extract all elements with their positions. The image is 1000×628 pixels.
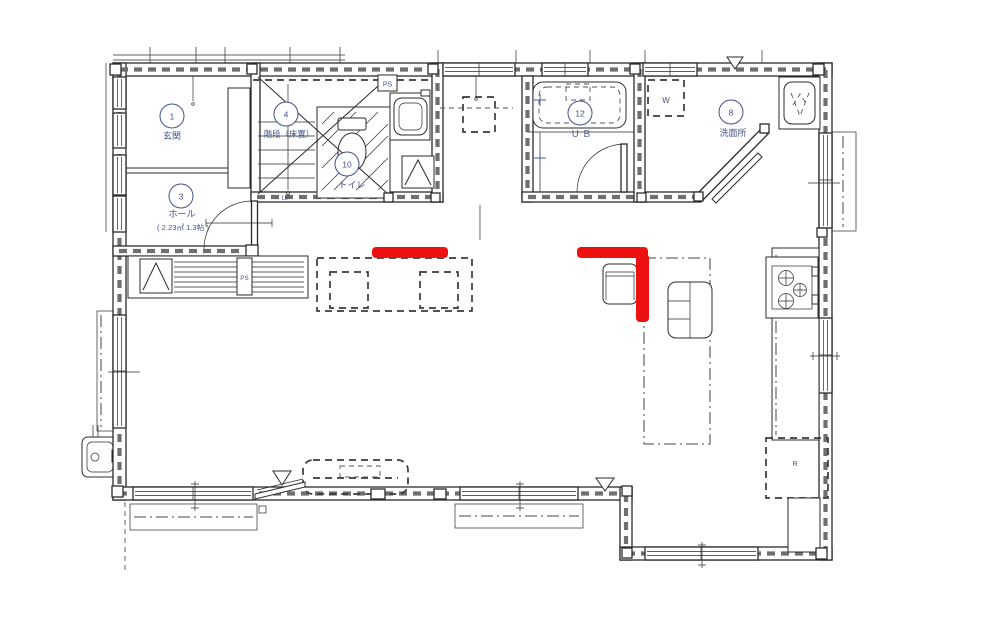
wall-washroom-diagonal bbox=[695, 128, 768, 202]
hall-storage-slats bbox=[128, 256, 308, 298]
washroom-label: 洗面所 bbox=[719, 127, 746, 138]
overhead-cabinet-dashed bbox=[463, 97, 495, 132]
bath-door-swing bbox=[577, 144, 625, 192]
furniture bbox=[255, 258, 614, 499]
window-washroom-right bbox=[819, 133, 832, 228]
washroom-number: 8 bbox=[729, 108, 734, 118]
pipe-space-hall-label: PS bbox=[240, 275, 248, 282]
entrance-label: 玄関 bbox=[163, 130, 181, 141]
bath-number: 12 bbox=[575, 109, 585, 119]
left-deck bbox=[97, 311, 113, 431]
hall-opening-dimension bbox=[206, 219, 272, 227]
pipe-space-top-label: PS bbox=[383, 82, 393, 89]
corridor-washbasin bbox=[390, 90, 430, 140]
hall-door-post bbox=[246, 245, 258, 256]
stairs-number: 4 bbox=[284, 110, 289, 120]
stairs-up-label: UP bbox=[282, 195, 291, 202]
desk-stool bbox=[603, 264, 637, 304]
washroom-vanity bbox=[779, 77, 820, 129]
window-bottom-right-section bbox=[645, 547, 758, 560]
interior-walls bbox=[113, 63, 768, 256]
wall-entrance-right bbox=[251, 63, 260, 201]
floor-plan-canvas: 1 玄関 3 ホール ( 2.23㎡ 1.3帖 ) 4 階段（床置） UP 10… bbox=[0, 0, 1000, 628]
highlight-desk-counter-side bbox=[636, 254, 649, 322]
window-top-3 bbox=[643, 63, 697, 76]
hall-door-leaf bbox=[252, 201, 258, 247]
highlight-dining-counter bbox=[372, 247, 448, 258]
window-top-1 bbox=[443, 63, 515, 76]
window-ldk-left bbox=[113, 315, 126, 428]
bath-label: Ｕ Ｂ bbox=[571, 129, 592, 139]
floor-plan-drawing: 1 玄関 3 ホール ( 2.23㎡ 1.3帖 ) 4 階段（床置） UP 10… bbox=[0, 0, 1000, 628]
hall-door-swing bbox=[204, 201, 252, 249]
refrigerator-label: R bbox=[792, 461, 797, 468]
window-kitchen-right bbox=[819, 318, 832, 393]
dining-set-dashed bbox=[317, 258, 472, 311]
cooktop bbox=[766, 257, 818, 318]
hall-number: 3 bbox=[179, 192, 184, 202]
entrance-number: 1 bbox=[170, 112, 175, 122]
structure-posts bbox=[110, 64, 827, 559]
dimension-ticks bbox=[108, 183, 840, 568]
window-hall-left bbox=[113, 196, 126, 232]
floor-hatch-corridor bbox=[402, 156, 434, 188]
hall-area-label: ( 2.23㎡ 1.3帖 ) bbox=[157, 222, 209, 232]
stairs-label: 階段（床置） bbox=[264, 129, 314, 139]
washer-label: W bbox=[662, 96, 670, 105]
hall-label: ホール bbox=[168, 209, 195, 219]
toilet-number: 10 bbox=[342, 160, 352, 170]
entrance-door-panels bbox=[113, 77, 126, 195]
toilet-label: トイレ bbox=[338, 180, 365, 190]
bath-door-leaf bbox=[621, 144, 627, 192]
window-top-2 bbox=[542, 63, 588, 76]
bath-floor-lines bbox=[527, 132, 634, 192]
shoe-cabinet bbox=[228, 88, 250, 188]
window-bottom-left bbox=[133, 487, 253, 500]
right-deck bbox=[832, 132, 856, 231]
entrance-canopy-lines bbox=[113, 55, 345, 60]
toilet-tank bbox=[338, 118, 366, 130]
pantry-cabinet bbox=[788, 498, 820, 552]
floor-hatch-hall bbox=[140, 259, 172, 293]
island-cabinet bbox=[668, 282, 712, 338]
window-bottom-center bbox=[460, 487, 578, 500]
